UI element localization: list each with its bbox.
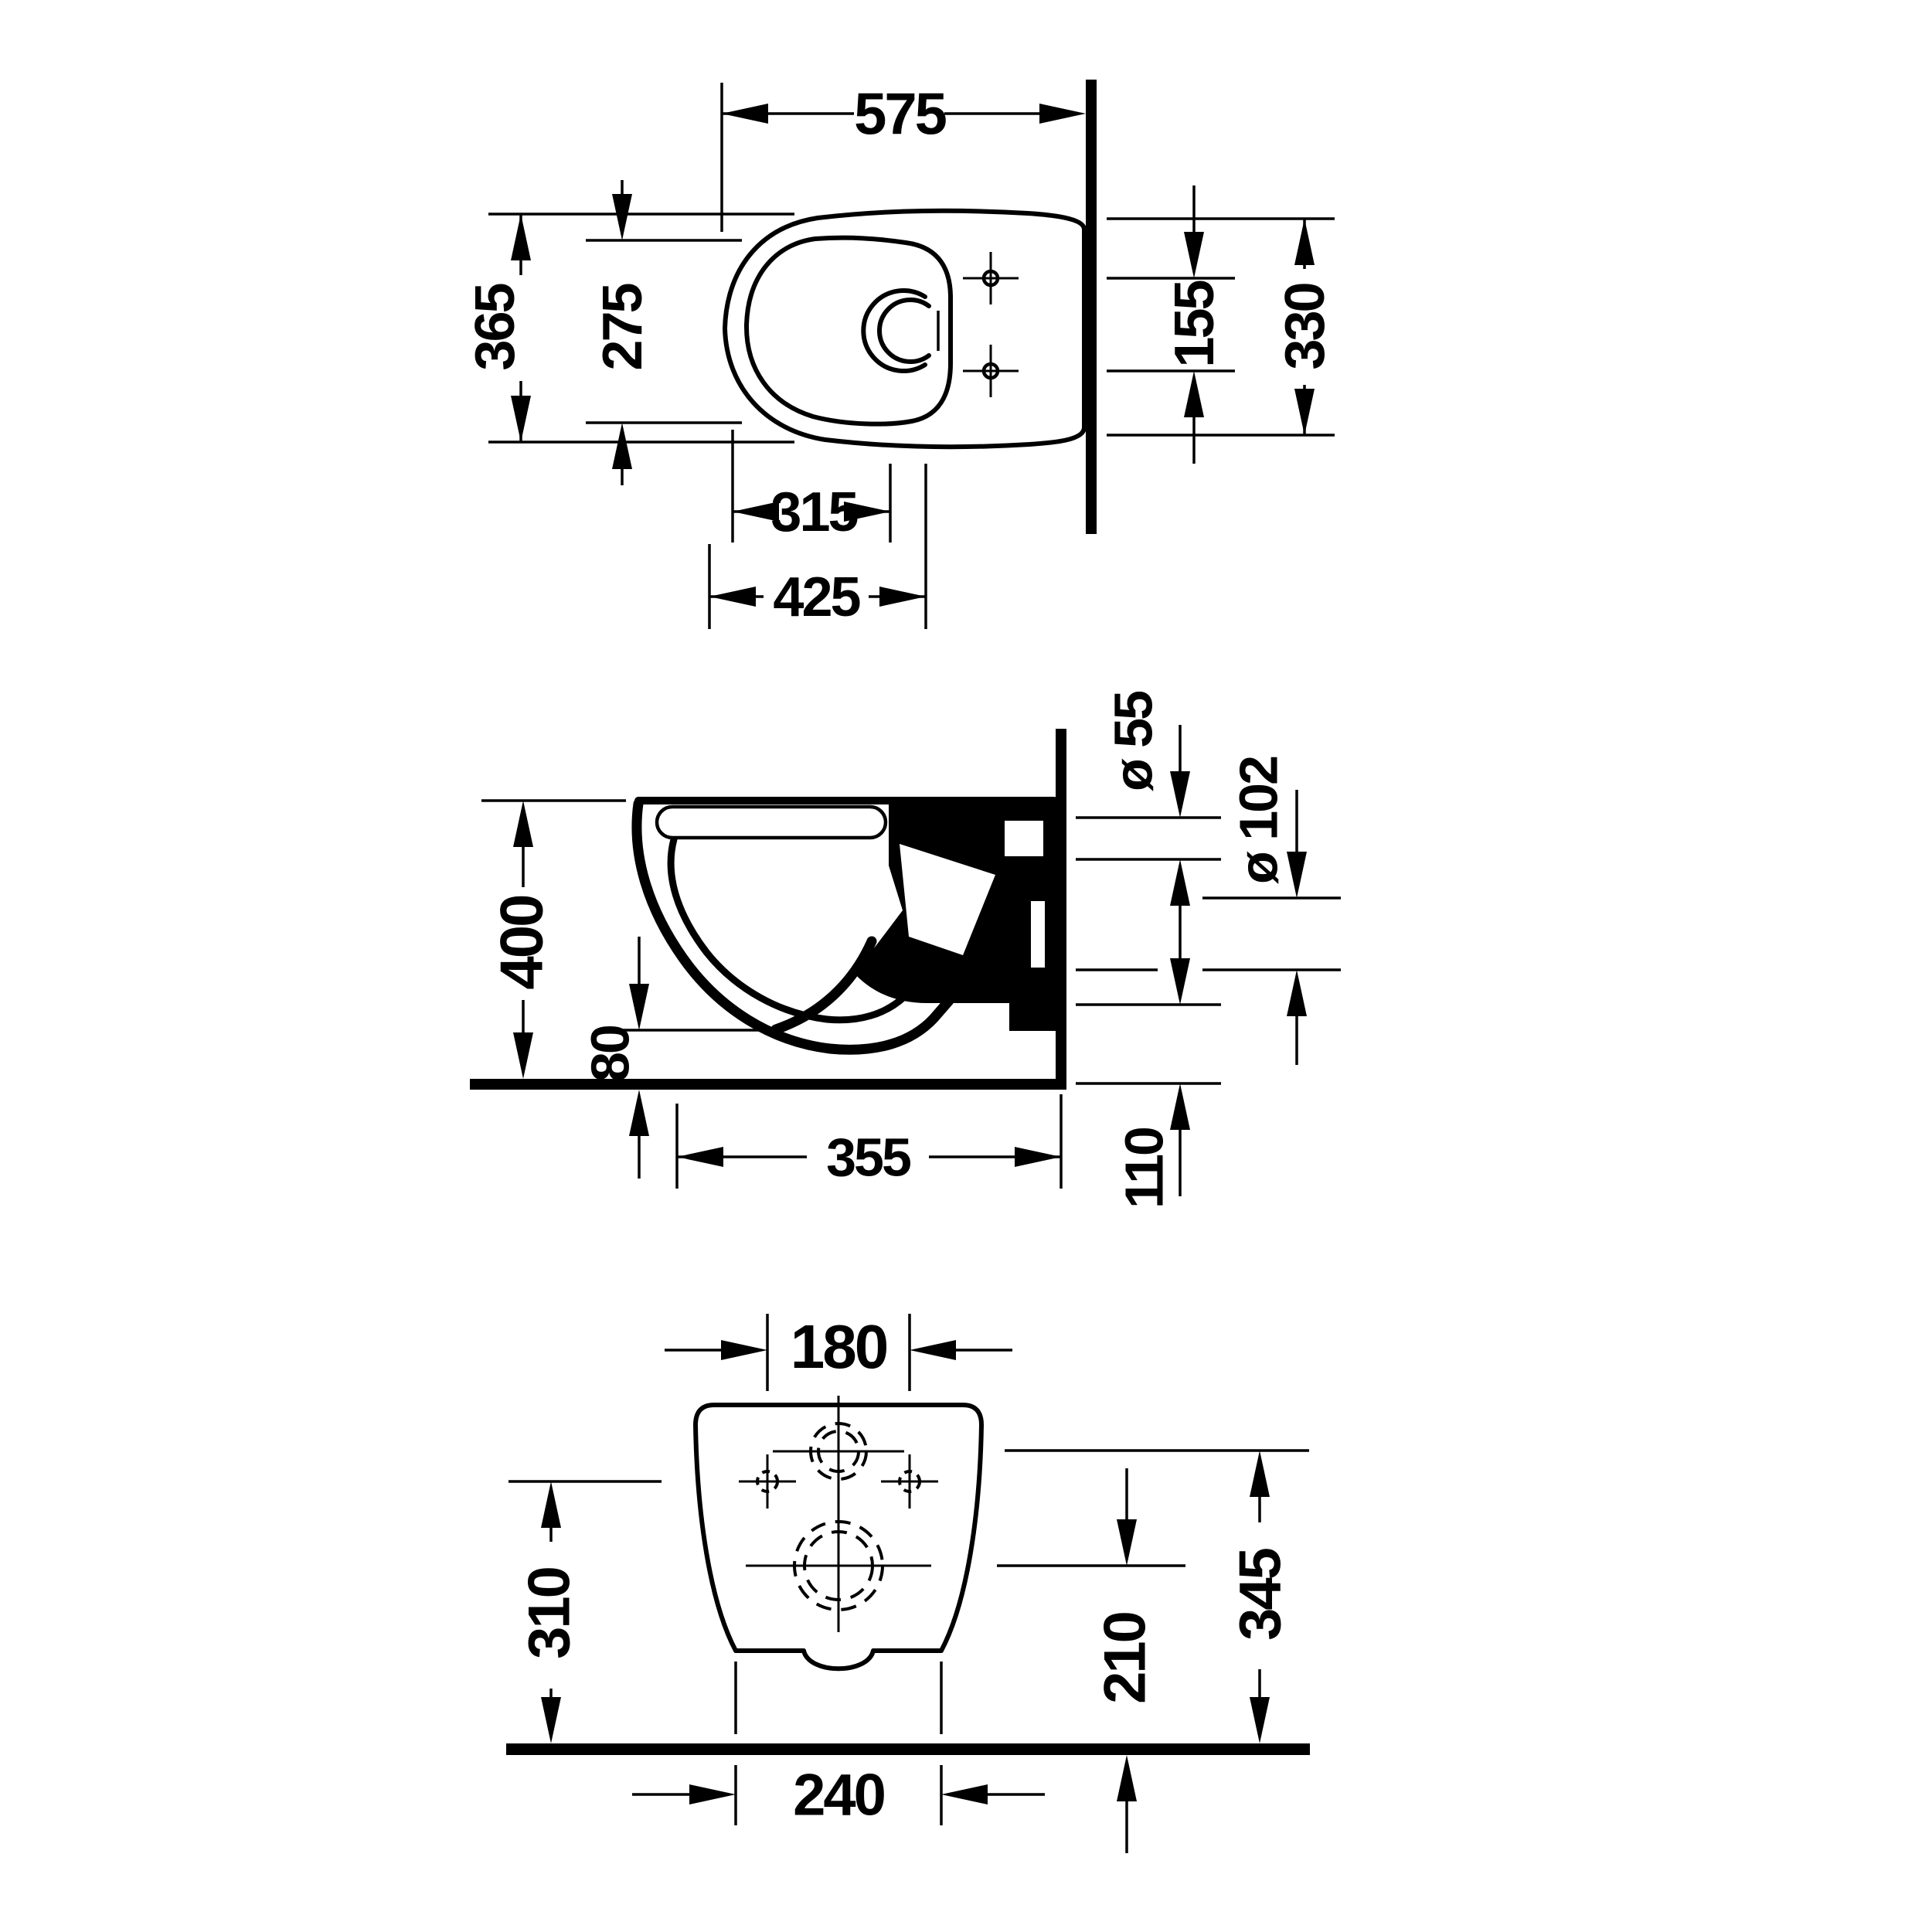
dim-arrow — [941, 1784, 988, 1804]
dim-arrow — [1287, 852, 1307, 898]
dim-arrow — [1287, 970, 1307, 1016]
floor-line — [470, 1079, 1066, 1090]
toilet-outline-top — [725, 211, 1084, 447]
dim-arrow — [1250, 1697, 1270, 1743]
dim-arrow — [612, 423, 632, 469]
dim-label-dia55: ø 55 — [1104, 692, 1164, 791]
dim-80: 80 — [580, 937, 767, 1179]
rim-channel — [657, 807, 886, 838]
dim-label-575: 575 — [854, 82, 947, 148]
dim-arrow — [541, 1697, 561, 1743]
dim-label-dia102: ø 102 — [1229, 757, 1289, 884]
dim-arrow — [541, 1481, 561, 1528]
dim-label-345: 345 — [1228, 1548, 1294, 1641]
dim-arrow — [1250, 1451, 1270, 1497]
side-view: 400 80 355 — [470, 692, 1341, 1209]
dim-arrow — [513, 1032, 533, 1079]
dim-arrow — [629, 1090, 649, 1136]
outlet-hole — [746, 1502, 931, 1629]
dim-arrow — [629, 984, 649, 1030]
dim-arrow — [677, 1147, 723, 1167]
dim-355: 355 — [677, 1094, 1061, 1189]
dim-arrow — [879, 587, 926, 607]
flush-hole — [773, 1396, 904, 1509]
bowl-opening-outline — [747, 238, 951, 424]
ceramic-section-mass — [855, 801, 1056, 1031]
dim-arrow — [1184, 232, 1204, 278]
dim-110: 110 — [1114, 1083, 1191, 1209]
dim-arrow — [511, 396, 531, 442]
dim-dia-102: ø 102 — [1229, 757, 1308, 1065]
flush-opening-inner-arc — [879, 300, 929, 362]
dim-arrow — [1170, 1083, 1190, 1130]
dim-label-155: 155 — [1164, 280, 1226, 367]
drawing-page: 575 365 275 — [0, 0, 1932, 1932]
dim-310: 310 — [509, 1481, 662, 1743]
dim-label-315: 315 — [770, 481, 858, 543]
mounting-hole-right — [881, 1454, 938, 1509]
dim-arrow — [1015, 1147, 1061, 1167]
wall-line — [1056, 729, 1066, 1090]
dim-label-425: 425 — [773, 566, 860, 628]
dim-label-110: 110 — [1114, 1128, 1175, 1209]
dim-315: 315 — [733, 430, 890, 543]
dim-label-400: 400 — [487, 896, 555, 990]
dim-label-80: 80 — [580, 1026, 641, 1082]
dim-arrow — [721, 1340, 767, 1360]
dim-label-355: 355 — [826, 1128, 910, 1188]
dim-275: 275 — [586, 180, 742, 485]
dim-arrow — [1117, 1519, 1137, 1566]
dim-label-330: 330 — [1274, 283, 1336, 369]
mounting-hole-left — [739, 1454, 796, 1509]
dim-arrow — [1170, 859, 1190, 906]
dim-arrow — [511, 214, 531, 260]
floor-line — [506, 1743, 1310, 1755]
dim-arrow — [910, 1340, 956, 1360]
dim-label-210: 210 — [1093, 1612, 1158, 1704]
dim-arrow — [612, 194, 632, 240]
seat-hole-bottom — [963, 345, 1019, 397]
dim-dia-55: ø 55 — [1104, 692, 1191, 818]
dim-arrow — [722, 104, 768, 124]
dim-label-240: 240 — [793, 1763, 885, 1828]
dim-label-365: 365 — [464, 283, 526, 370]
dim-arrow — [1294, 219, 1315, 265]
wall-line — [1086, 80, 1097, 534]
dim-label-310: 310 — [517, 1567, 583, 1659]
dim-arrow — [1294, 389, 1315, 435]
top-view: 575 365 275 — [464, 80, 1336, 629]
dim-arrow — [1117, 1755, 1137, 1801]
technical-drawing: 575 365 275 — [0, 0, 1932, 1932]
rear-view: 180 310 240 — [506, 1312, 1310, 1853]
dim-arrow — [1184, 371, 1204, 417]
dim-chain — [1170, 859, 1190, 1005]
dim-arrow — [1170, 958, 1190, 1005]
dim-arrow — [709, 587, 756, 607]
dim-180: 180 — [665, 1312, 1012, 1391]
dim-label-275: 275 — [592, 283, 654, 370]
dim-arrow — [513, 801, 533, 847]
dim-155: 155 — [1107, 185, 1235, 464]
dim-arrow — [1039, 104, 1086, 124]
dim-arrow — [1170, 771, 1190, 818]
seat-hole-top — [963, 252, 1019, 304]
dim-label-180: 180 — [791, 1312, 887, 1381]
dim-arrow — [689, 1784, 736, 1804]
